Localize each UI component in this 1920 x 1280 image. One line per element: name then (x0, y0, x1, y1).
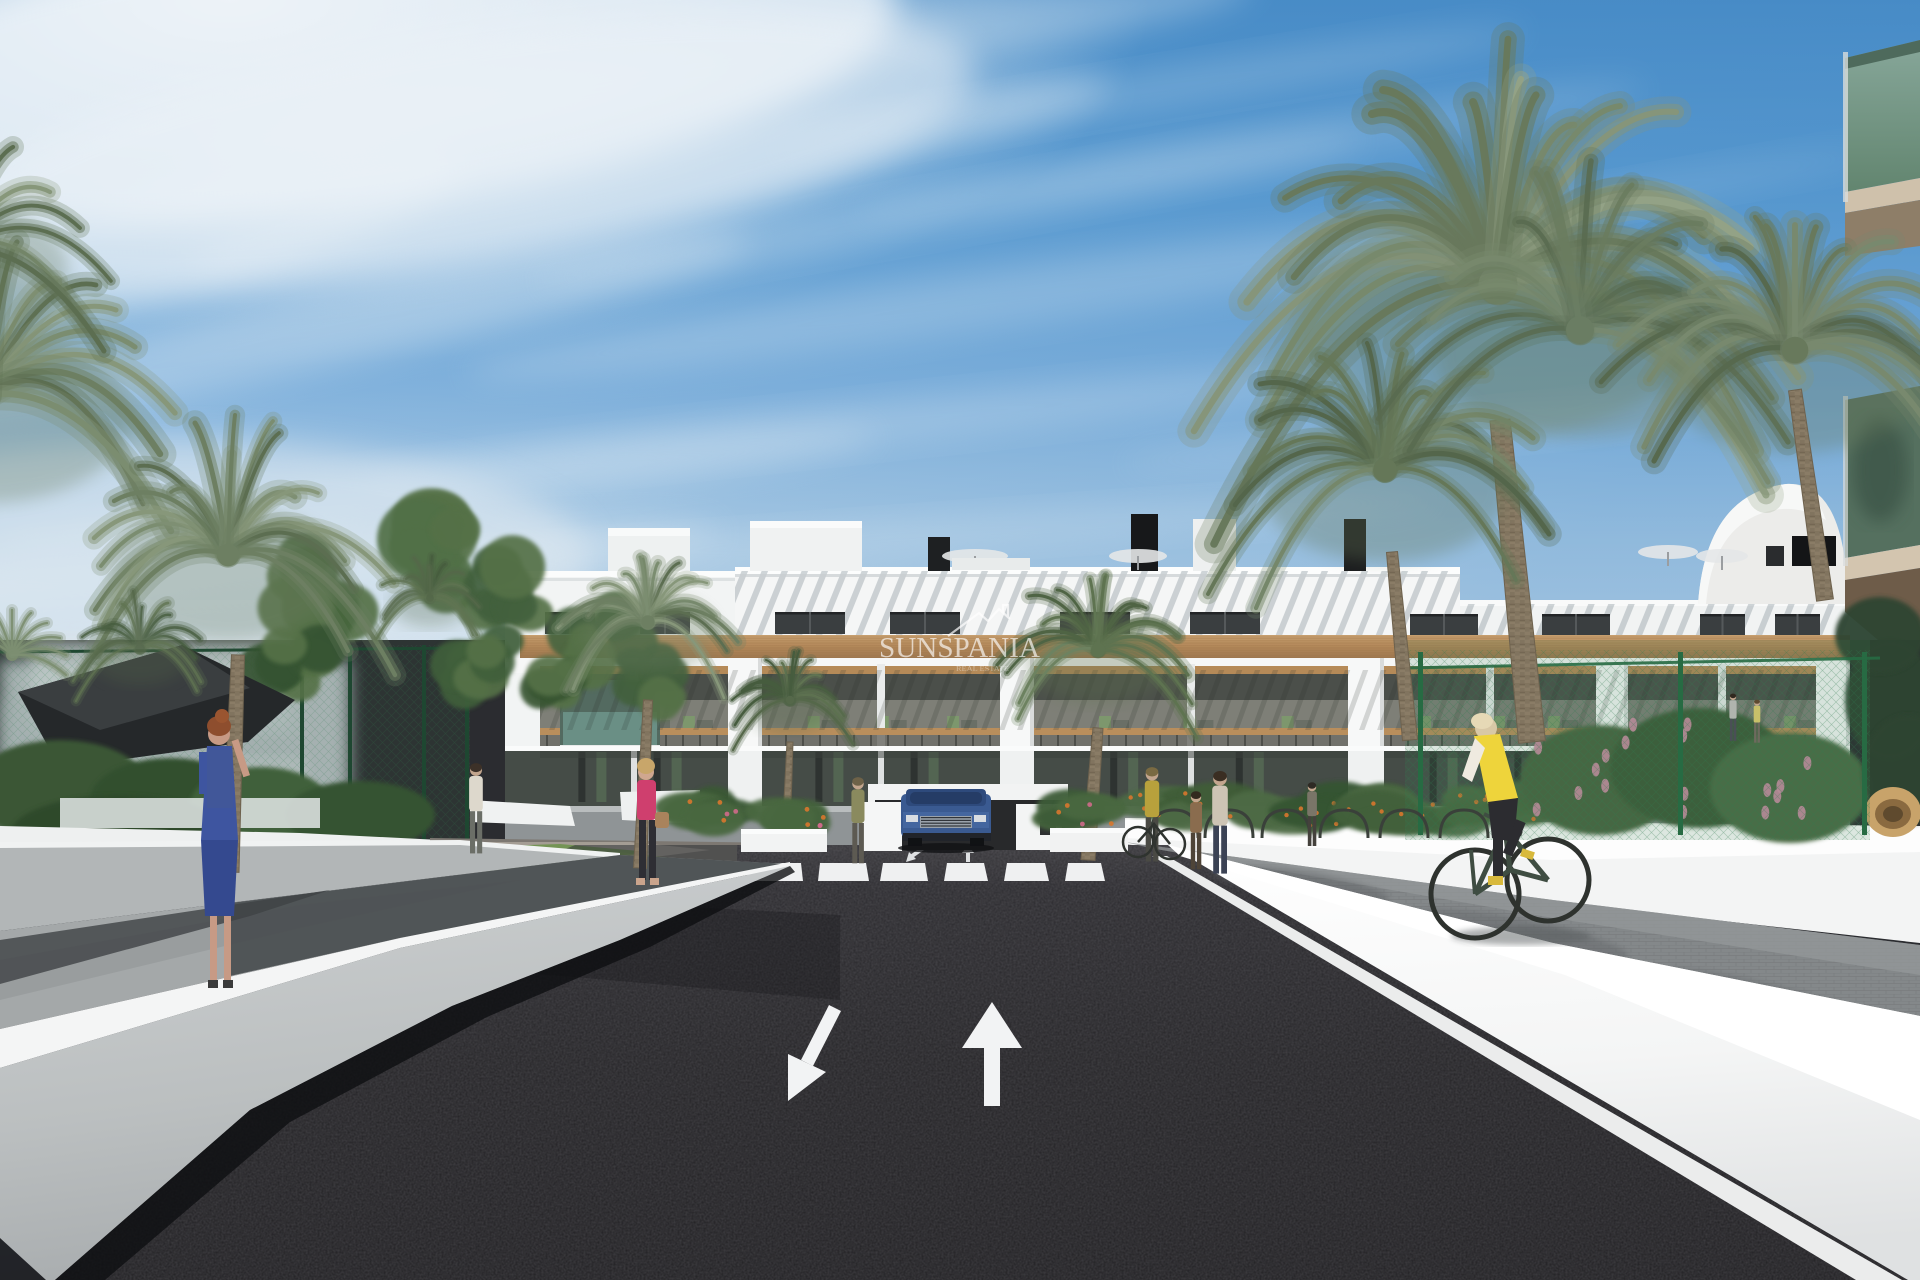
svg-text:REAL ESTATE: REAL ESTATE (956, 664, 1009, 673)
svg-text:SUNSPANIA: SUNSPANIA (879, 633, 1041, 664)
